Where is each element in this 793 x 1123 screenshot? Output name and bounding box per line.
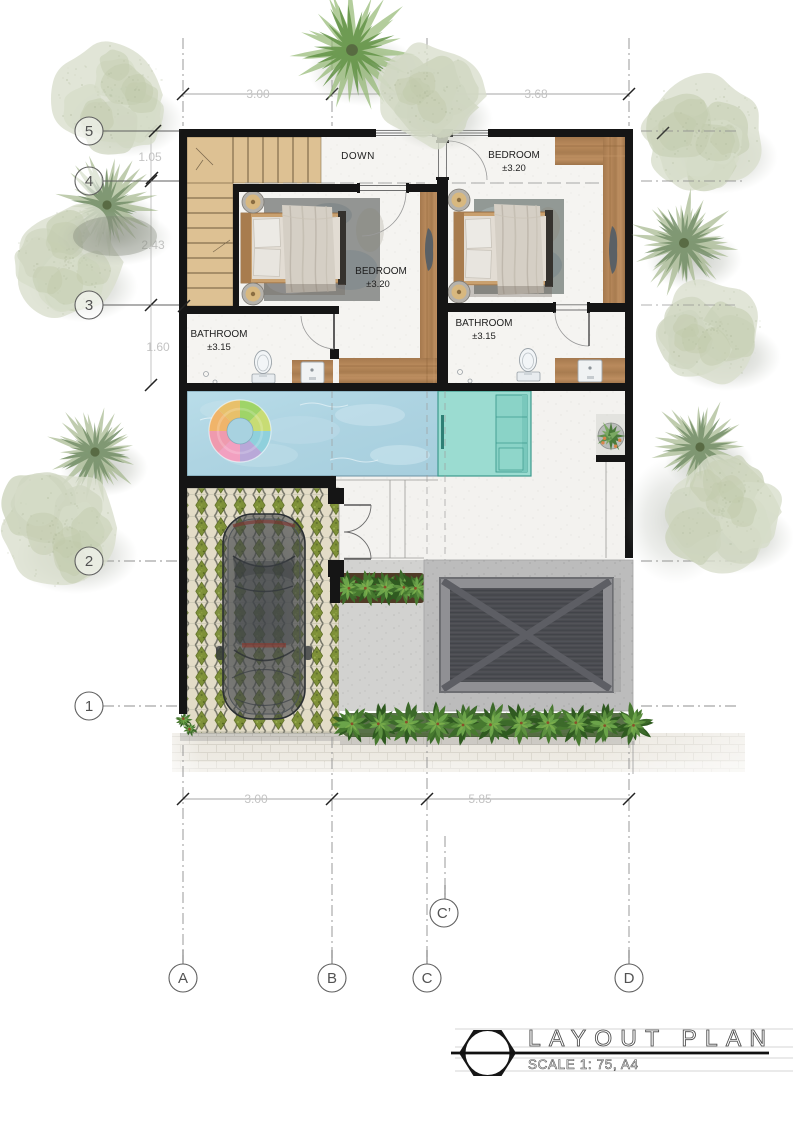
svg-text:±3.15: ±3.15 xyxy=(207,342,231,353)
svg-text:B: B xyxy=(327,970,337,987)
svg-text:3.68: 3.68 xyxy=(524,87,548,101)
svg-text:A: A xyxy=(178,970,188,987)
svg-text:3.00: 3.00 xyxy=(246,87,270,101)
svg-text:SCALE 1: 75, A4: SCALE 1: 75, A4 xyxy=(528,1057,638,1072)
svg-text:4: 4 xyxy=(85,173,93,190)
svg-text:DOWN: DOWN xyxy=(341,151,375,162)
svg-text:2: 2 xyxy=(85,553,93,570)
svg-text:5: 5 xyxy=(85,123,93,140)
svg-text:BEDROOM: BEDROOM xyxy=(488,150,540,161)
svg-text:±3.15: ±3.15 xyxy=(472,331,496,342)
svg-text:C’: C’ xyxy=(437,905,451,922)
svg-text:1.60: 1.60 xyxy=(146,340,170,354)
svg-text:3: 3 xyxy=(85,297,93,314)
svg-text:±3.20: ±3.20 xyxy=(502,163,526,174)
svg-text:D: D xyxy=(624,970,635,987)
svg-text:BEDROOM: BEDROOM xyxy=(355,266,407,277)
svg-text:±3.20: ±3.20 xyxy=(366,279,390,290)
svg-text:3.00: 3.00 xyxy=(244,792,268,806)
svg-text:BATHROOM: BATHROOM xyxy=(455,318,512,329)
svg-text:5.85: 5.85 xyxy=(468,792,492,806)
svg-text:BATHROOM: BATHROOM xyxy=(190,329,247,340)
svg-text:1: 1 xyxy=(85,698,93,715)
svg-text:C: C xyxy=(422,970,433,987)
